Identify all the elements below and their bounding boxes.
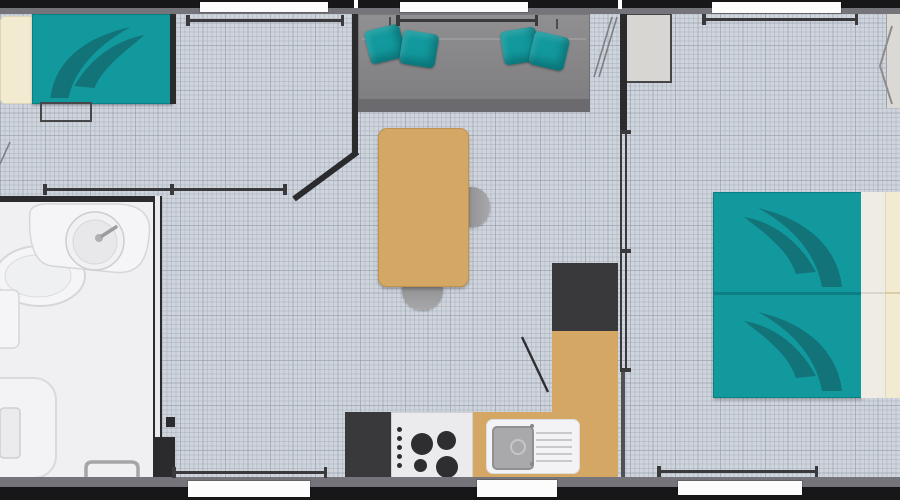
door-chevron-right bbox=[880, 26, 892, 104]
line-overlay bbox=[0, 0, 900, 500]
counter-flap-line bbox=[522, 337, 548, 392]
floor-plan bbox=[0, 0, 900, 500]
entry-door-swing bbox=[599, 17, 617, 77]
door-swing-left-edge bbox=[0, 142, 10, 164]
entry-door-swing bbox=[594, 17, 612, 77]
